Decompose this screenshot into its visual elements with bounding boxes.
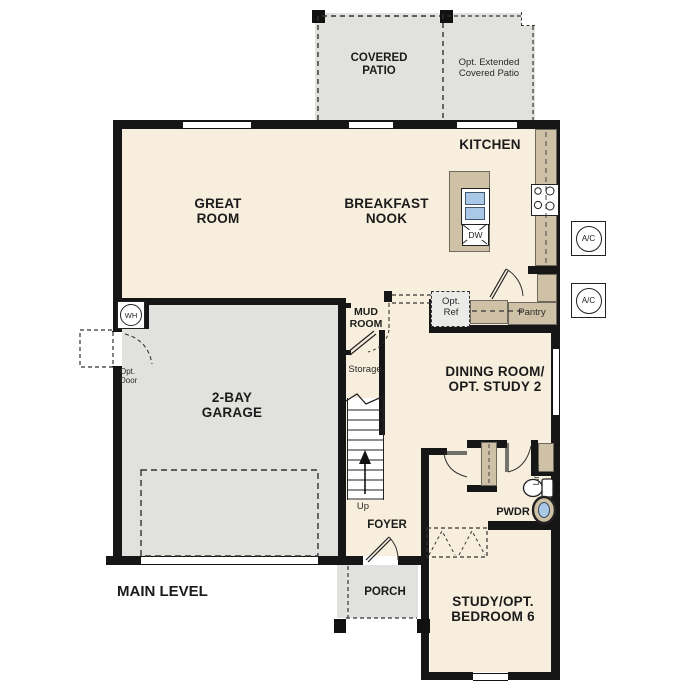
ac-unit-1: A/C bbox=[571, 221, 606, 256]
dishwasher: DW bbox=[462, 224, 489, 246]
breakfast-nook-label: BREAKFAST NOOK bbox=[338, 196, 435, 226]
ac-circle-1: A/C bbox=[576, 226, 602, 252]
porch-post-right bbox=[417, 619, 430, 633]
wall-counter-stub bbox=[528, 266, 558, 274]
ac-label-1: A/C bbox=[582, 234, 595, 243]
dishwasher-label: DW bbox=[467, 230, 483, 240]
island-sink-bowl-2 bbox=[465, 207, 485, 220]
garage-door-opening bbox=[141, 556, 318, 565]
wall-mudroom-stub-mid bbox=[338, 350, 351, 355]
patio-post-right bbox=[440, 10, 453, 23]
optref-counter bbox=[470, 300, 508, 324]
wall-powder-bottom bbox=[488, 521, 558, 530]
kitchen-label: KITCHEN bbox=[452, 137, 528, 152]
kitchen-window bbox=[457, 121, 517, 129]
wh-box: WH bbox=[117, 301, 145, 329]
dining-label: DINING ROOM/ OPT. STUDY 2 bbox=[440, 364, 550, 394]
stove bbox=[531, 184, 559, 216]
ac-unit-2: A/C bbox=[571, 283, 606, 318]
main-level-title: MAIN LEVEL bbox=[117, 583, 237, 600]
storage-label: Storage bbox=[343, 364, 387, 375]
patio-door-window bbox=[349, 121, 393, 129]
patio-post-left bbox=[312, 10, 325, 23]
garage-label: 2-BAY GARAGE bbox=[191, 390, 273, 420]
extended-patio-notch bbox=[521, 12, 535, 26]
great-room-label: GREAT ROOM bbox=[183, 196, 253, 226]
pantry-counter-upper bbox=[537, 274, 557, 302]
covered-patio-label: COVERED PATIO bbox=[341, 52, 417, 78]
opt-door-label: Opt. Door bbox=[120, 367, 150, 385]
garage-area bbox=[122, 305, 338, 556]
opt-ref-label: Opt. Ref bbox=[436, 296, 466, 318]
water-heater: WH bbox=[120, 304, 142, 326]
study-window bbox=[473, 673, 508, 681]
foyer-label: FOYER bbox=[363, 519, 411, 532]
ac-label-2: A/C bbox=[582, 296, 595, 305]
extended-patio-label: Opt. Extended Covered Patio bbox=[447, 57, 531, 79]
hall-closet bbox=[481, 442, 497, 486]
up-label: Up bbox=[350, 501, 376, 512]
linen-label: Linen bbox=[531, 460, 541, 490]
wall-closet-bottom bbox=[467, 485, 497, 492]
pwdr-label: PWDR bbox=[492, 506, 534, 519]
porch-label: PORCH bbox=[359, 586, 411, 599]
pantry-label: Pantry bbox=[513, 307, 551, 318]
island-sink-bowl-1 bbox=[465, 192, 485, 205]
wall-garage-bottom-left bbox=[106, 556, 142, 565]
ac-circle-2: A/C bbox=[576, 288, 602, 314]
wall-breakfast-stub bbox=[384, 291, 392, 302]
wh-label: WH bbox=[125, 311, 138, 320]
dining-window bbox=[552, 349, 560, 415]
porch-post-left bbox=[334, 619, 346, 633]
wall-study-bottom-b bbox=[508, 672, 560, 680]
wall-hall-study-left bbox=[421, 448, 429, 680]
wall-study-bottom-a bbox=[421, 672, 473, 680]
study-label: STUDY/OPT. BEDROOM 6 bbox=[436, 594, 550, 624]
opt-door-opening bbox=[112, 331, 122, 367]
wall-mudstrip-right bbox=[379, 330, 385, 435]
floor-plan: DW WH A/C A/C bbox=[0, 0, 687, 687]
great-room-window bbox=[183, 121, 251, 129]
opt-door-dash bbox=[80, 330, 113, 367]
wall-mudstrip-left bbox=[338, 298, 346, 565]
mud-room-label: MUD ROOM bbox=[343, 306, 389, 330]
